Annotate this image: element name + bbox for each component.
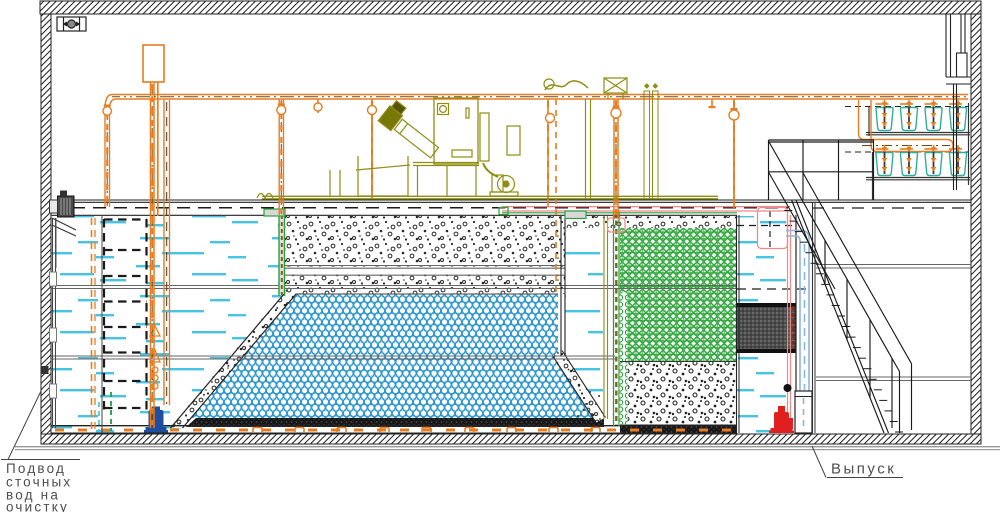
svg-text:Выпуск: Выпуск: [831, 461, 896, 478]
svg-text:очистку: очистку: [6, 500, 69, 512]
